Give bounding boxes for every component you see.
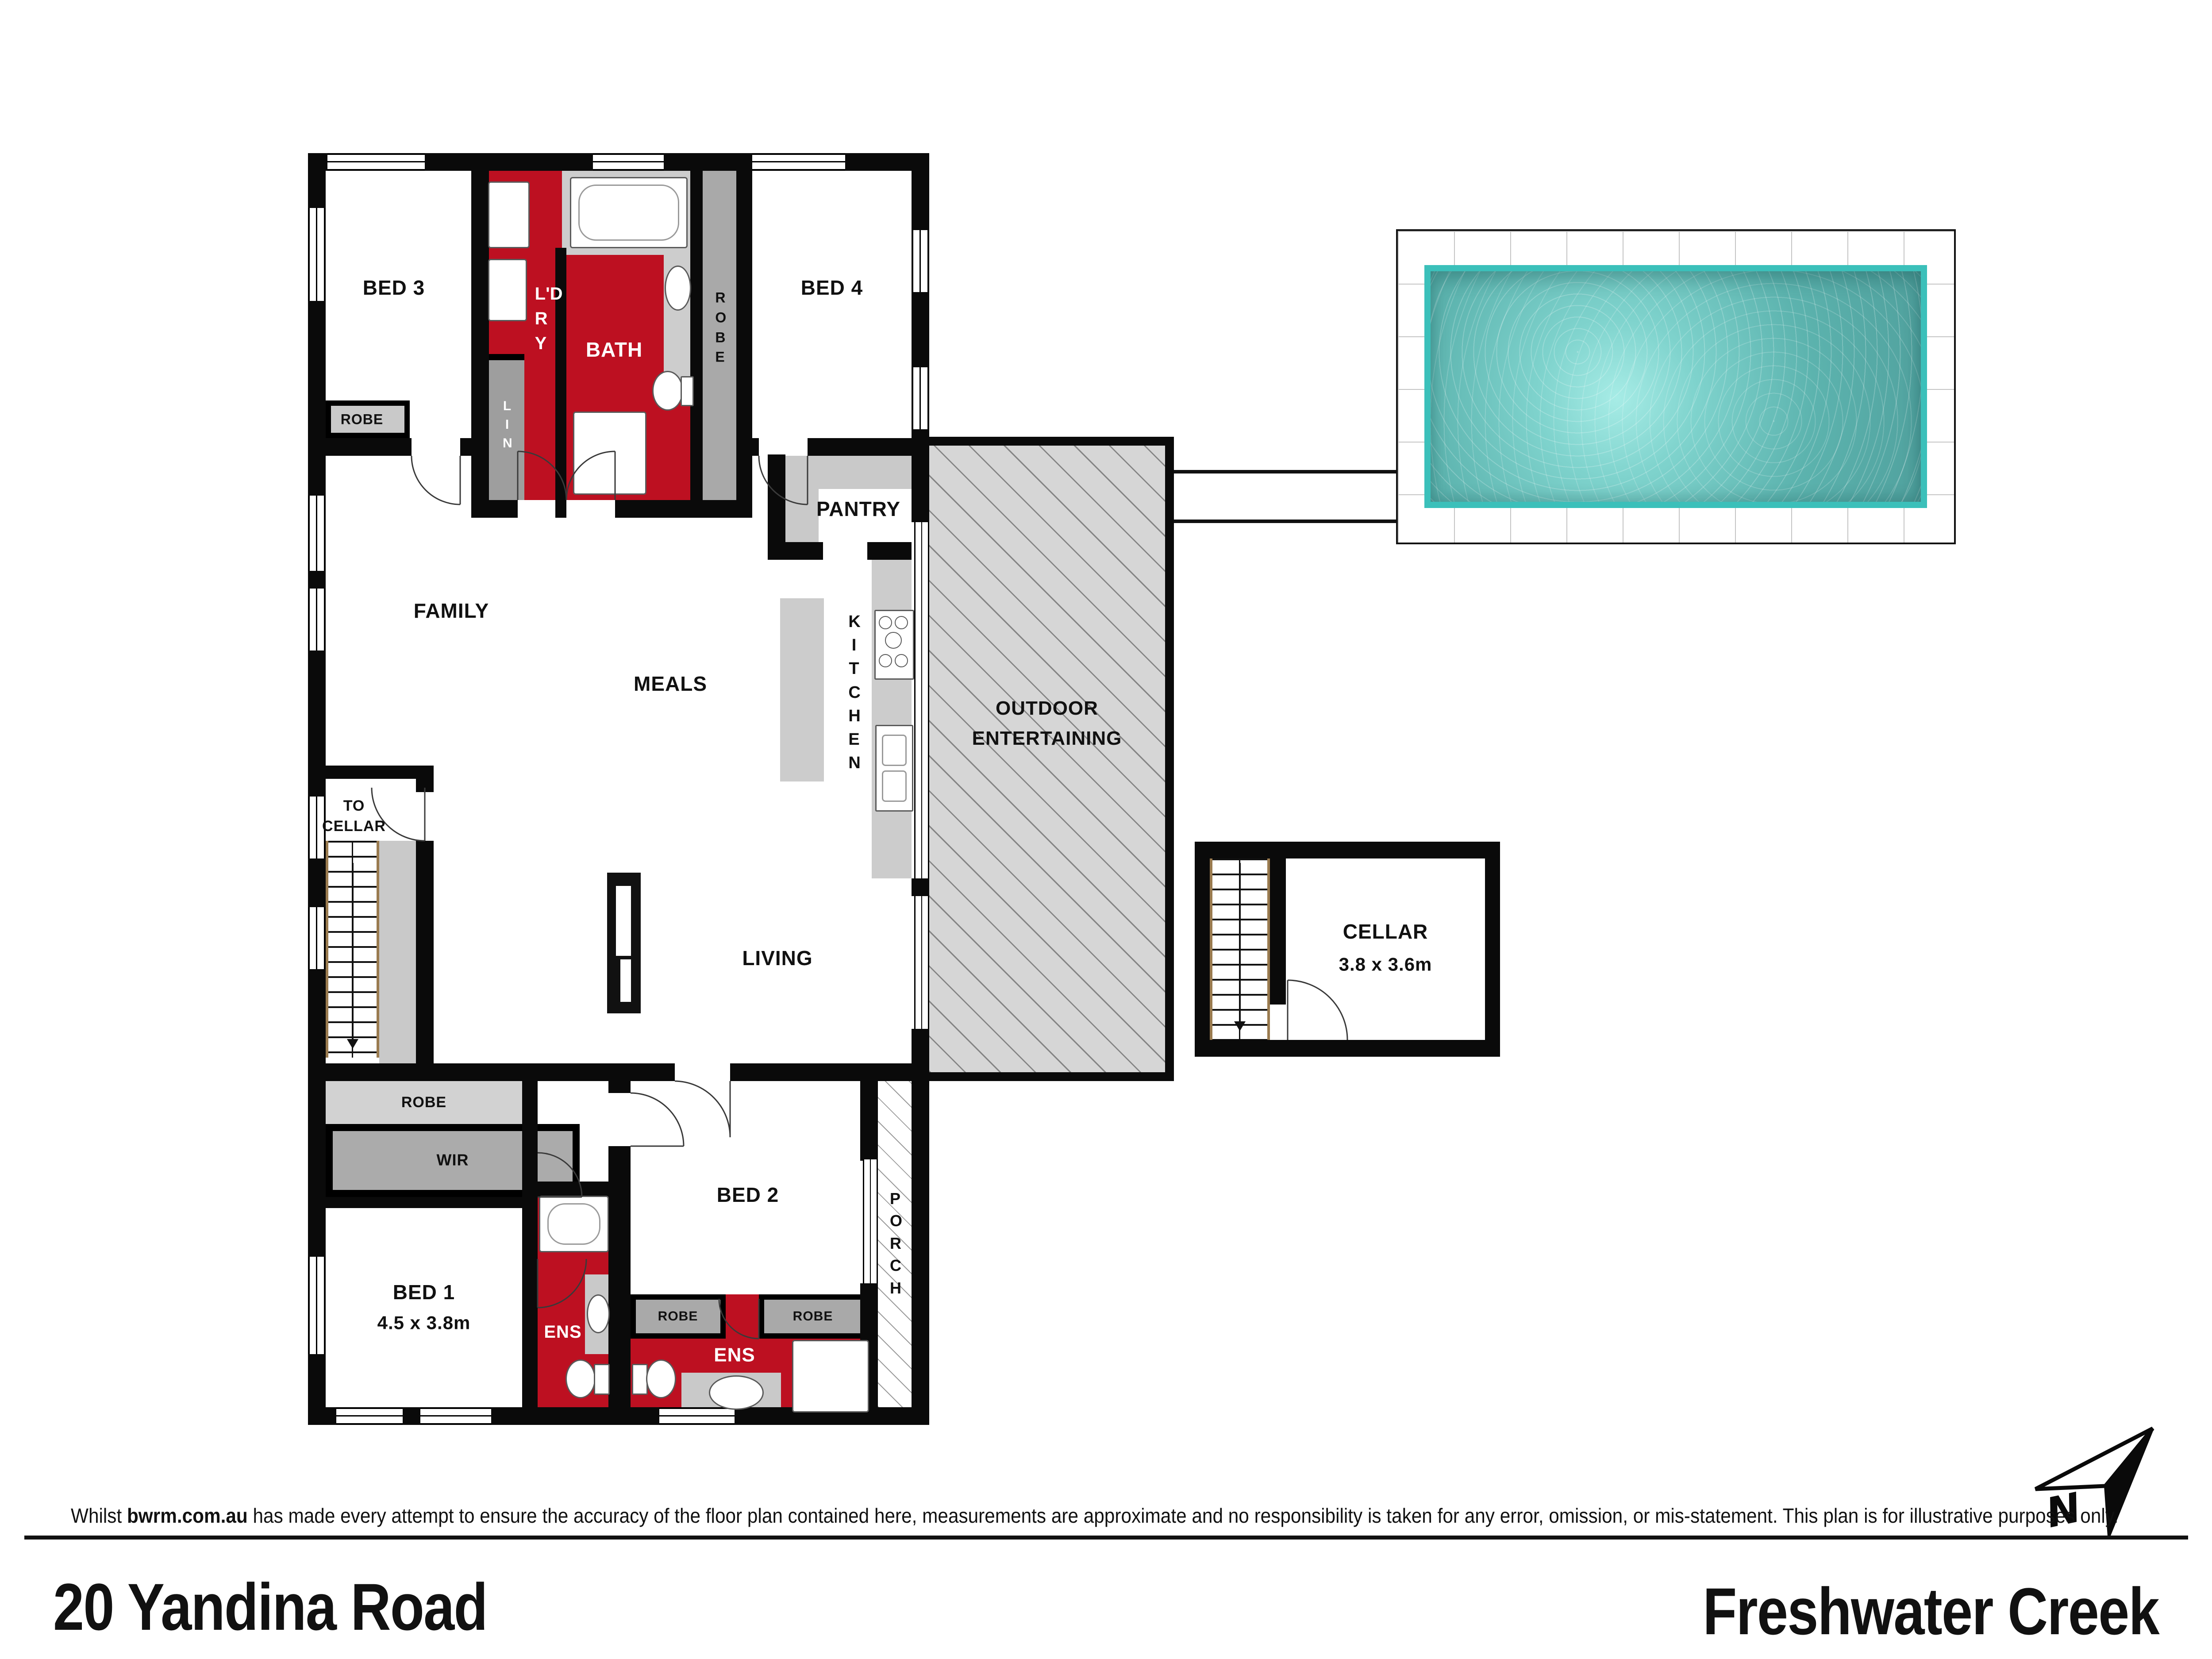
door-ensuite2 xyxy=(719,1299,759,1339)
disclaimer-rest: has made every attempt to ensure the acc… xyxy=(248,1504,2119,1527)
room-label-family: FAMILY xyxy=(414,597,489,624)
door-laundry xyxy=(518,451,566,500)
door-bath xyxy=(566,451,615,500)
floorplan-sheet: BED 3 ROBE L'DRY LIN BATH ROBE BED 4 PAN… xyxy=(0,0,2212,1659)
room-label-kitchen: KITCHEN xyxy=(848,610,859,775)
room-label-ens2: ENS xyxy=(714,1342,755,1368)
room-label-porch: PORCH xyxy=(890,1188,900,1299)
door-bed2 xyxy=(631,1093,684,1146)
disclaimer: Whilst bwrm.com.au has made every attemp… xyxy=(71,1504,2119,1528)
room-label-robe-bed2-right: ROBE xyxy=(793,1308,833,1326)
room-label-robe-bed2-left: ROBE xyxy=(658,1308,698,1326)
door-ensuite1 xyxy=(538,1259,586,1308)
room-label-outdoor: OUTDOOR ENTERTAINING xyxy=(945,693,1149,754)
room-label-cellar: CELLAR xyxy=(1343,918,1428,945)
room-label-cellar-dims: 3.8 x 3.6m xyxy=(1339,952,1432,978)
door-cellar xyxy=(1288,980,1347,1040)
room-label-bed3: BED 3 xyxy=(363,274,425,301)
disclaimer-brand: bwrm.com.au xyxy=(127,1504,248,1527)
address-title: 20 Yandina Road xyxy=(53,1569,487,1645)
room-label-robe-bed3: ROBE xyxy=(341,410,383,429)
room-label-meals: MEALS xyxy=(634,670,707,697)
room-label-bed1-dims: 4.5 x 3.8m xyxy=(377,1311,471,1336)
room-label-wir: WIR xyxy=(437,1150,469,1171)
room-label-robe-hall: ROBE xyxy=(401,1093,446,1113)
room-label-ens1: ENS xyxy=(544,1320,581,1344)
suburb-title: Freshwater Creek xyxy=(1703,1573,2159,1650)
room-label-bed2: BED 2 xyxy=(717,1181,779,1209)
footer-divider xyxy=(24,1536,2188,1540)
room-label-lin: LIN xyxy=(503,397,512,453)
door-bed3 xyxy=(412,456,460,504)
disclaimer-prefix: Whilst xyxy=(71,1504,127,1527)
room-label-bath: BATH xyxy=(586,336,642,363)
door-bed4 xyxy=(759,456,808,504)
room-label-bed1: BED 1 xyxy=(393,1278,455,1306)
room-label-robe-bed4: ROBE xyxy=(715,288,724,367)
door-hall xyxy=(675,1081,730,1137)
room-label-ldry: L'DRY xyxy=(535,281,547,356)
room-label-living: LIVING xyxy=(742,944,812,972)
room-label-to-cellar: TO CELLAR xyxy=(314,796,394,837)
room-label-bed4: BED 4 xyxy=(801,274,863,301)
door-wir xyxy=(538,1153,582,1197)
room-label-pantry: PANTRY xyxy=(816,495,900,523)
